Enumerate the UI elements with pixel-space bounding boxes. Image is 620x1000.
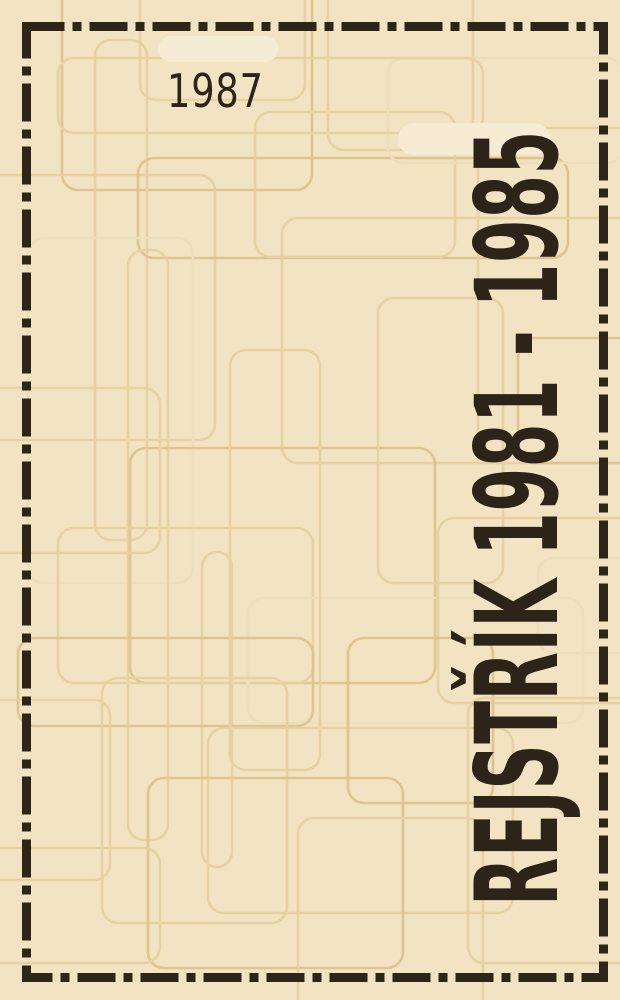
book-cover: 1987 REJSTŘÍK 1981 - 1985 bbox=[0, 0, 620, 1000]
spine-title: REJSTŘÍK 1981 - 1985 bbox=[458, 130, 578, 906]
spine-title-rotation: REJSTŘÍK 1981 - 1985 bbox=[458, 0, 578, 1000]
year-label: 1987 bbox=[167, 68, 264, 114]
